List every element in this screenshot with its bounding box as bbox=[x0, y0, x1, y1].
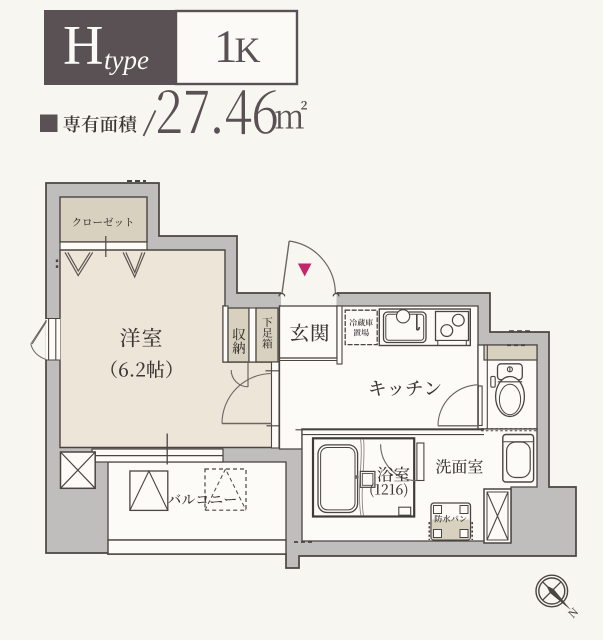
svg-text:type: type bbox=[104, 45, 149, 75]
svg-text:H: H bbox=[63, 15, 103, 77]
svg-text:K: K bbox=[235, 30, 261, 70]
